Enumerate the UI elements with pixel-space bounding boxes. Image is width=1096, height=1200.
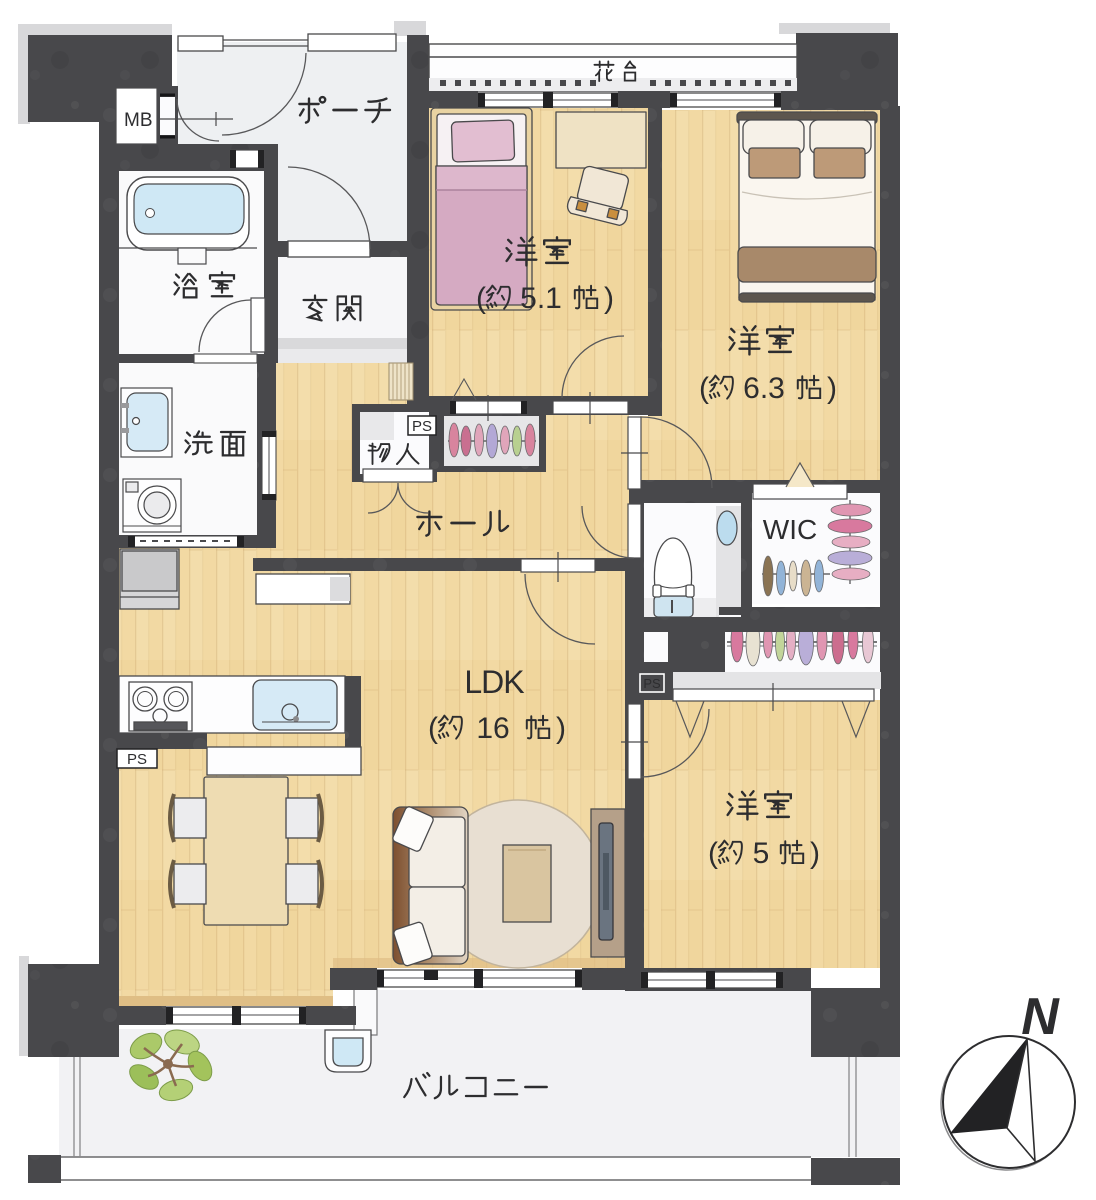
svg-text:16: 16	[476, 712, 509, 745]
svg-text:PS: PS	[643, 676, 661, 691]
svg-text:(: (	[428, 712, 438, 745]
svg-text:5: 5	[753, 837, 770, 870]
svg-text:5.1: 5.1	[520, 282, 562, 315]
svg-text:LDK: LDK	[464, 664, 524, 700]
svg-text:(: (	[708, 837, 718, 870]
svg-text:MB: MB	[124, 110, 153, 131]
svg-text:6.3: 6.3	[743, 372, 785, 405]
svg-text:): )	[604, 282, 614, 315]
svg-text:(: (	[476, 282, 486, 315]
svg-text:(: (	[699, 372, 709, 405]
svg-text:PS: PS	[412, 418, 432, 435]
svg-text:): )	[810, 837, 820, 870]
svg-text:): )	[827, 372, 837, 405]
svg-text:PS: PS	[127, 751, 147, 768]
svg-text:): )	[556, 712, 566, 745]
svg-text:WIC: WIC	[763, 514, 817, 545]
svg-text:N: N	[1021, 988, 1060, 1046]
